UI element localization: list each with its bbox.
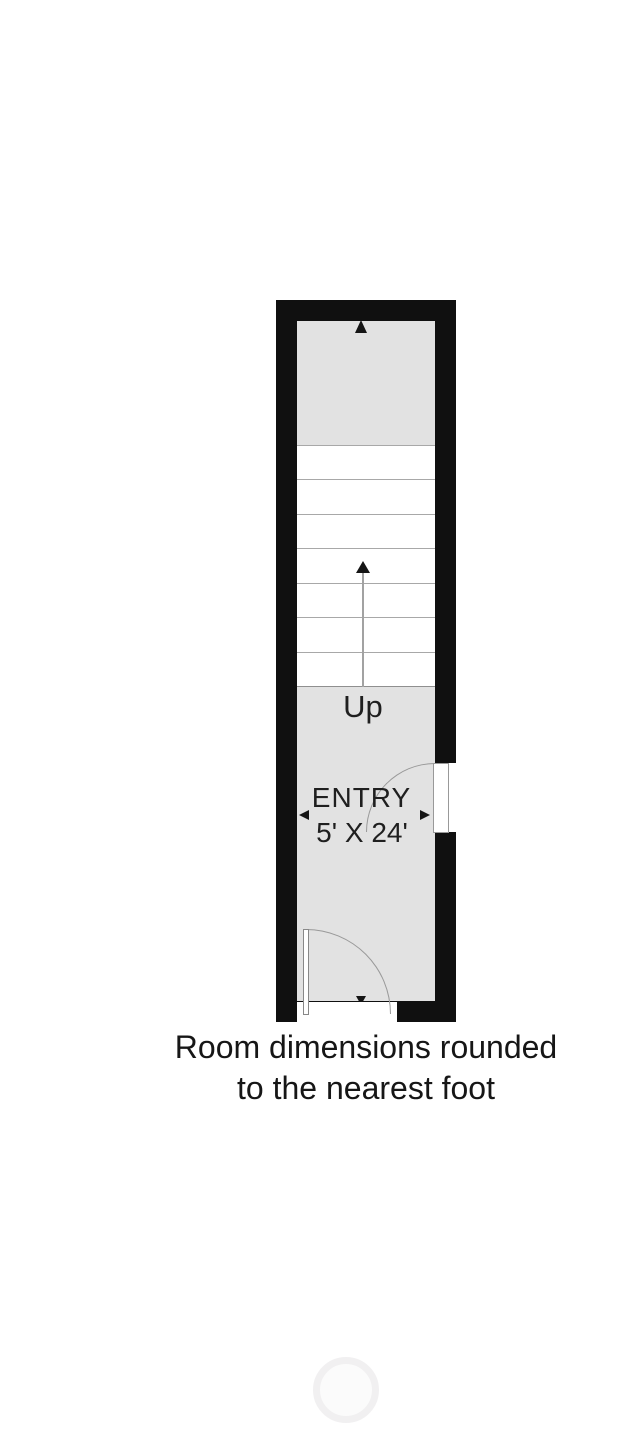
upper-landing [297,321,435,445]
stair-tread [297,583,435,617]
floor-plan-interior [297,321,435,1001]
caption: Room dimensions rounded to the nearest f… [116,1027,616,1109]
stair-tread [297,514,435,548]
stair-tread [297,479,435,513]
stair-tread [297,446,435,479]
stair-up-arrow-icon [356,561,370,573]
caption-line-2: to the nearest foot [116,1068,616,1109]
bottom-door-leaf [303,929,309,1015]
caption-line-1: Room dimensions rounded [116,1027,616,1068]
watermark-circle-icon [313,1357,379,1423]
stairs-up-label: Up [297,691,429,722]
stair-tread [297,617,435,651]
right-door-leaf [433,763,449,833]
stair-arrow-shaft [362,573,364,687]
room-name-label: ENTRY [297,784,426,812]
dimension-arrow-up-icon [355,320,367,333]
stair-tread [297,652,435,686]
room-size-label: 5' X 24' [297,819,427,847]
